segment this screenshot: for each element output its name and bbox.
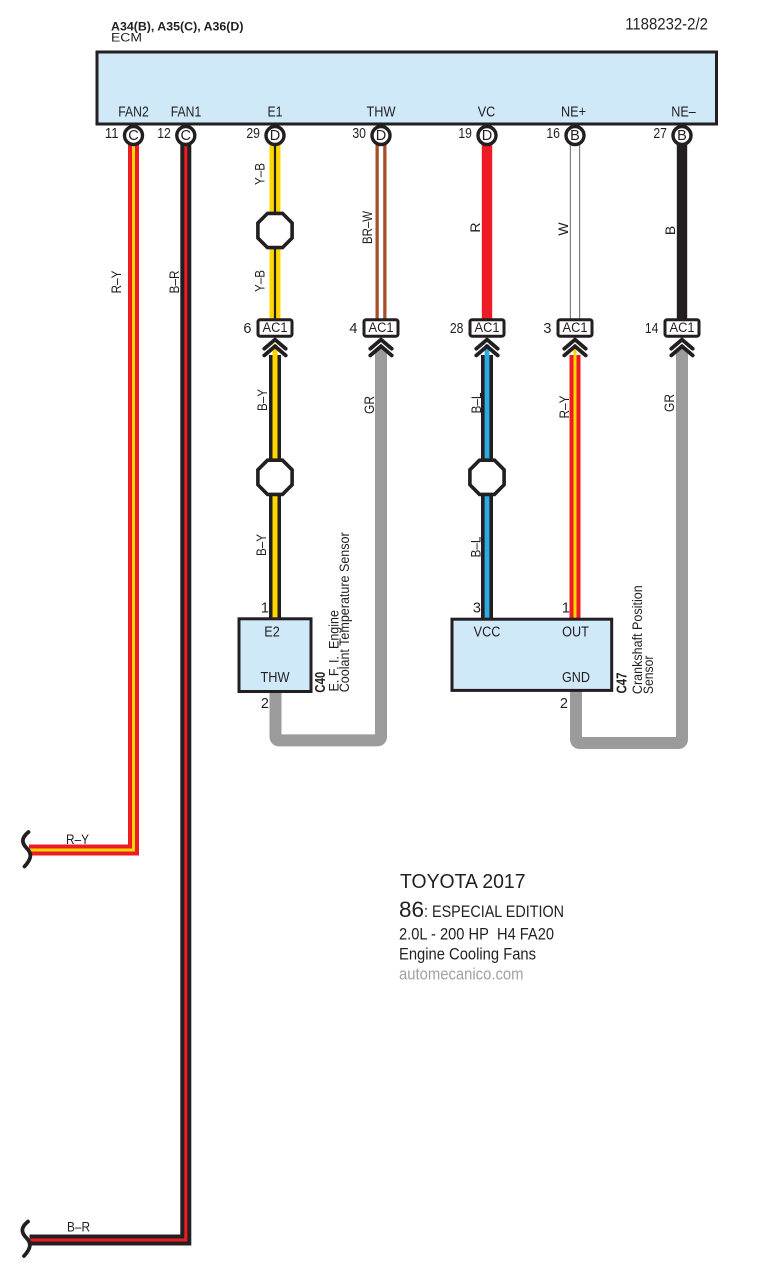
svg-text:OUT: OUT <box>562 625 589 641</box>
svg-text:R–Y: R–Y <box>556 395 572 419</box>
svg-text:2.0L - 200 HP H4 FA20: 2.0L - 200 HP H4 FA20 <box>399 926 554 944</box>
svg-text:Sensor: Sensor <box>641 655 656 694</box>
svg-text:3: 3 <box>473 601 481 617</box>
svg-text:THW: THW <box>367 105 396 121</box>
svg-text:NE+: NE+ <box>561 105 586 121</box>
svg-text:ECM: ECM <box>111 31 142 45</box>
svg-text:VC: VC <box>478 105 496 121</box>
svg-text:B: B <box>662 226 678 235</box>
svg-text:1: 1 <box>261 601 269 617</box>
svg-text:TOYOTA 2017: TOYOTA 2017 <box>400 870 526 893</box>
svg-text:AC1: AC1 <box>563 320 588 335</box>
svg-text:E2: E2 <box>264 625 280 641</box>
svg-text:automecanico.com: automecanico.com <box>399 966 524 984</box>
svg-text:B–L: B–L <box>468 392 484 413</box>
svg-text:B–R: B–R <box>166 271 182 294</box>
svg-text:AC1: AC1 <box>263 320 288 335</box>
svg-text:R–Y: R–Y <box>108 270 124 294</box>
svg-text:2: 2 <box>560 696 568 712</box>
svg-text:14: 14 <box>645 321 659 337</box>
svg-text:Coolant Temperature Sensor: Coolant Temperature Sensor <box>337 532 352 692</box>
svg-text:B–L: B–L <box>468 536 484 557</box>
svg-text:GND: GND <box>562 670 590 686</box>
svg-text:R: R <box>467 222 483 232</box>
svg-text:W: W <box>555 222 571 236</box>
svg-text:AC1: AC1 <box>670 320 695 335</box>
svg-text:11: 11 <box>105 126 119 142</box>
svg-text:NE–: NE– <box>671 105 696 121</box>
svg-text:28: 28 <box>450 321 464 337</box>
svg-text:C: C <box>128 128 138 144</box>
svg-text:GR: GR <box>361 396 377 414</box>
svg-text:GR: GR <box>661 394 677 412</box>
svg-text:27: 27 <box>653 126 667 142</box>
svg-text:4: 4 <box>349 321 357 337</box>
svg-text:D: D <box>270 128 280 144</box>
svg-text:E1: E1 <box>268 105 283 121</box>
svg-text:Y–B: Y–B <box>252 163 268 185</box>
svg-text:3: 3 <box>543 321 551 337</box>
svg-text:FAN1: FAN1 <box>171 105 202 121</box>
svg-text:1188232-2/2: 1188232-2/2 <box>625 14 708 33</box>
svg-text:D: D <box>482 128 492 144</box>
svg-text:B–Y: B–Y <box>253 533 269 556</box>
svg-text:Engine Cooling Fans: Engine Cooling Fans <box>399 946 536 964</box>
svg-text:B–R: B–R <box>67 1219 90 1235</box>
svg-text:16: 16 <box>546 126 560 142</box>
svg-text:12: 12 <box>157 126 171 142</box>
svg-text:2: 2 <box>261 696 269 712</box>
svg-text:B: B <box>677 128 687 144</box>
svg-text:R–Y: R–Y <box>66 831 90 847</box>
svg-text:FAN2: FAN2 <box>118 105 149 121</box>
svg-text:19: 19 <box>458 126 472 142</box>
svg-text:C: C <box>181 128 191 144</box>
svg-text:6: 6 <box>243 321 251 337</box>
svg-text:B–Y: B–Y <box>254 388 270 411</box>
svg-text:Y–B: Y–B <box>252 270 268 292</box>
svg-text:BR–W: BR–W <box>359 210 375 244</box>
svg-text:30: 30 <box>352 126 366 142</box>
svg-text:THW: THW <box>261 670 290 686</box>
svg-text:AC1: AC1 <box>475 320 500 335</box>
svg-text:D: D <box>376 128 386 144</box>
svg-text:1: 1 <box>562 601 570 617</box>
svg-text:C47: C47 <box>615 673 631 694</box>
svg-text:B: B <box>570 128 580 144</box>
svg-text:AC1: AC1 <box>369 320 394 335</box>
svg-text:29: 29 <box>246 126 260 142</box>
svg-text:VCC: VCC <box>474 625 501 641</box>
